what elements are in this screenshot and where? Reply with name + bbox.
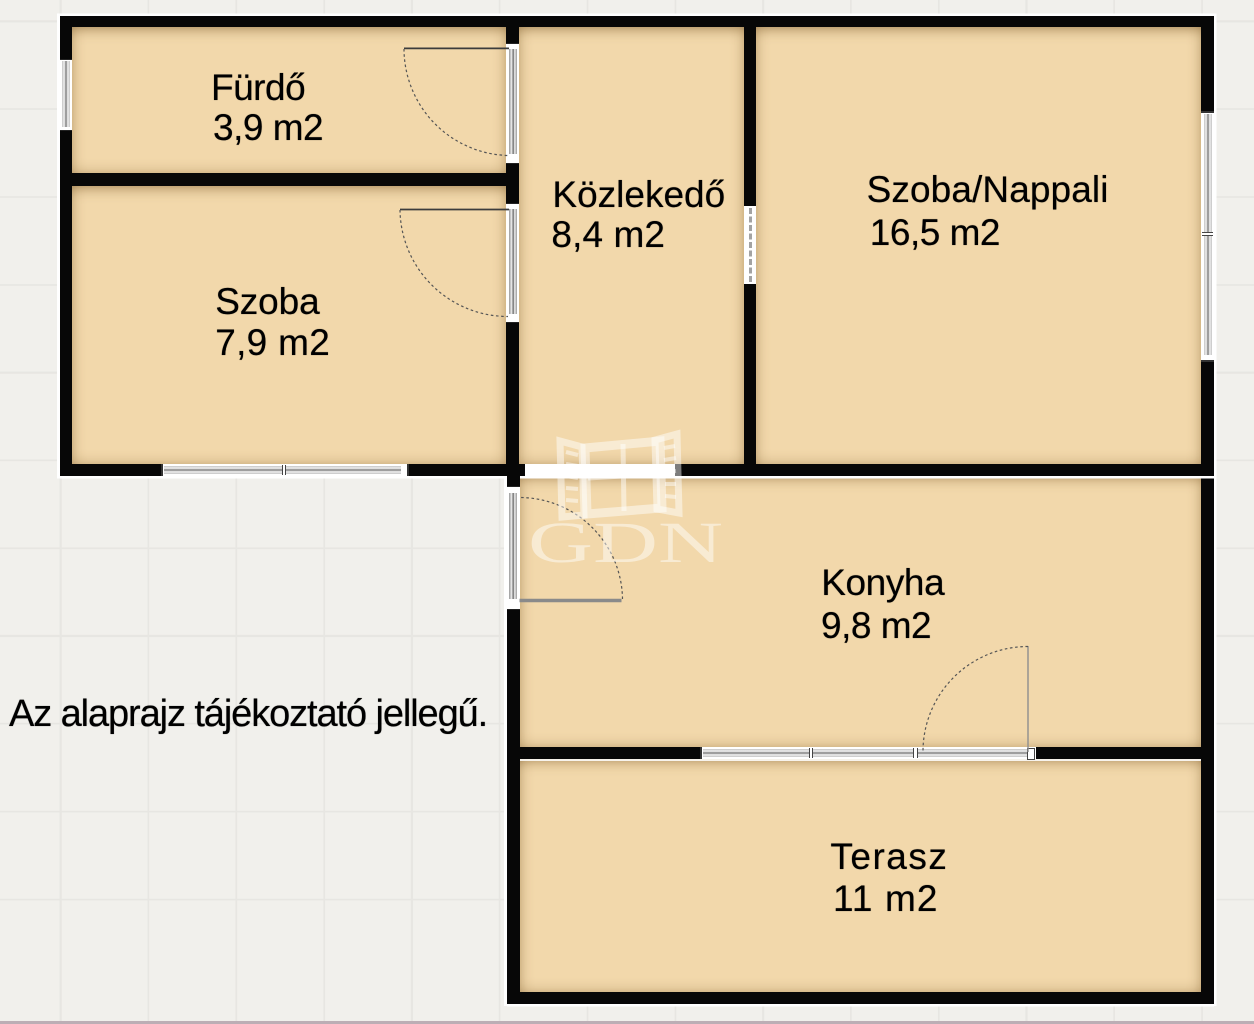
svg-text:GDN: GDN: [528, 510, 723, 575]
